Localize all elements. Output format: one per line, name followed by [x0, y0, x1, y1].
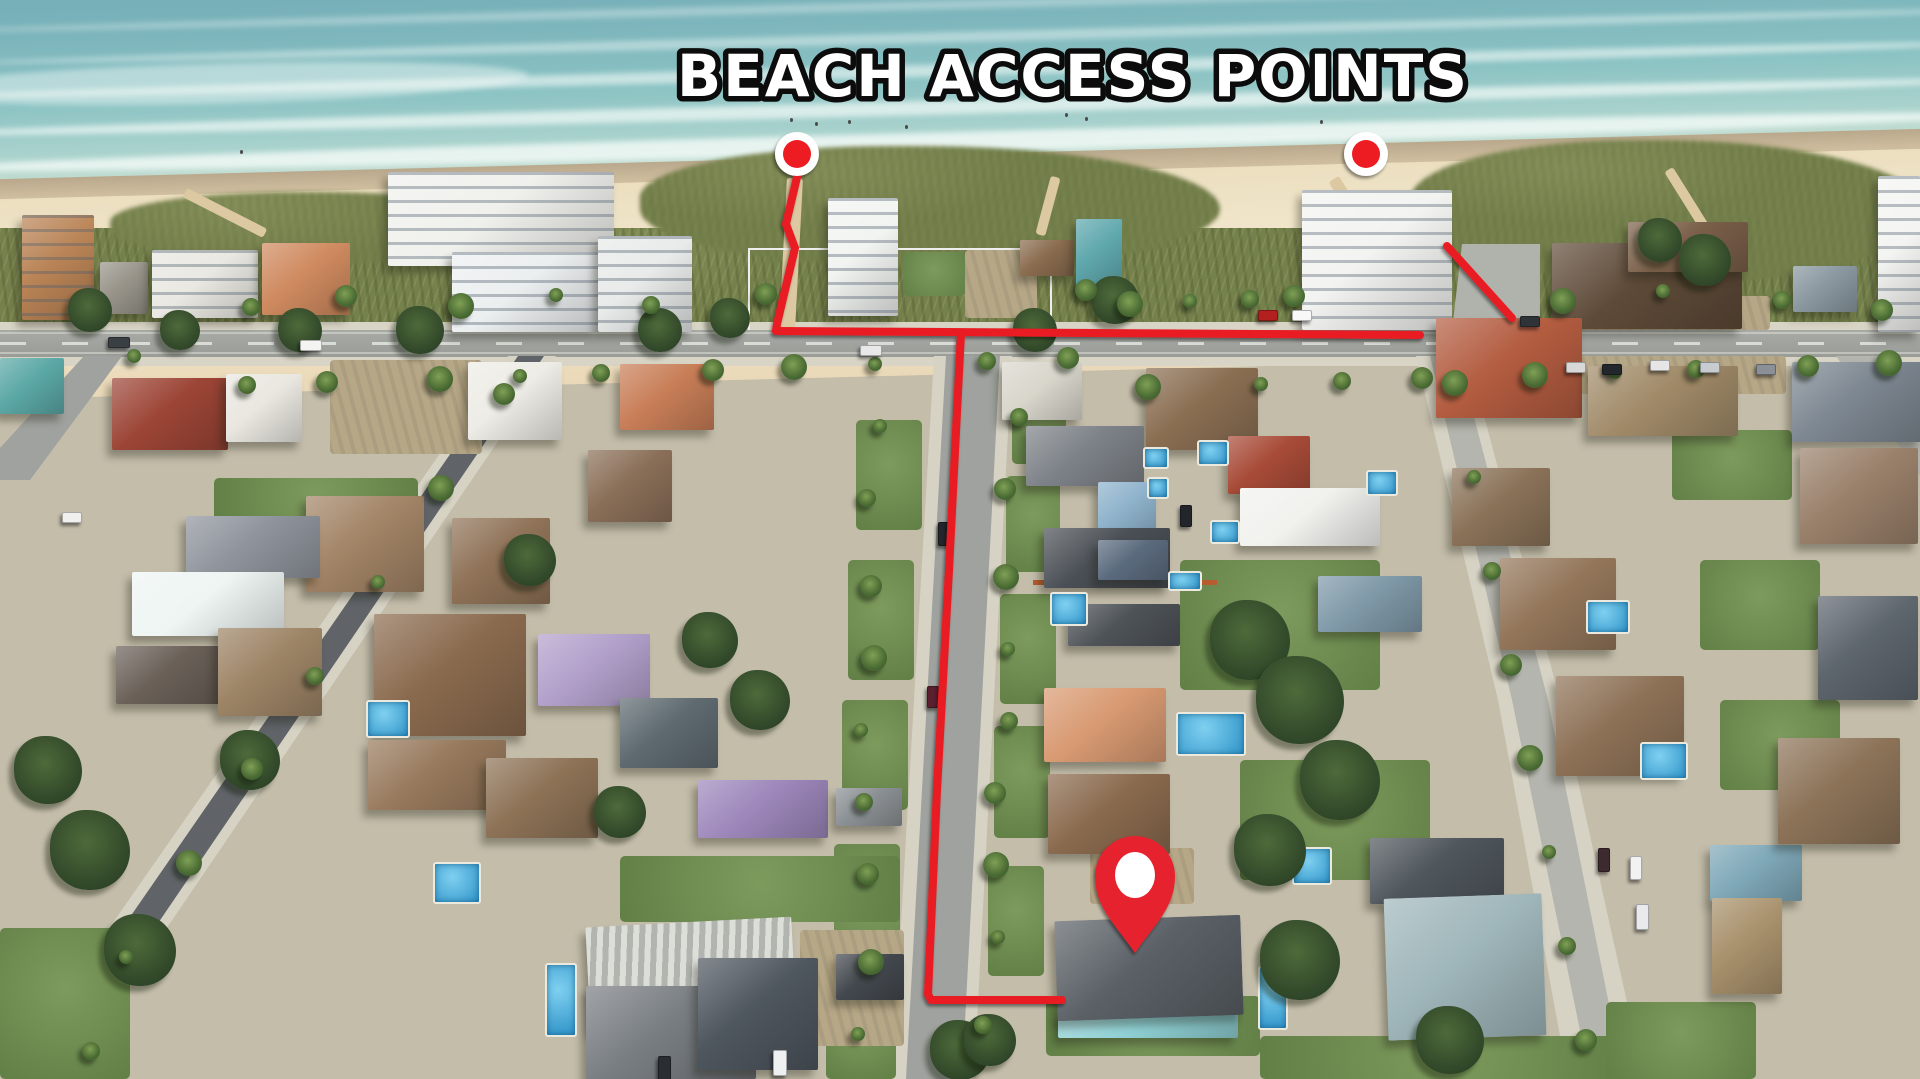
car	[108, 337, 130, 348]
car	[1700, 362, 1720, 373]
house	[1026, 426, 1144, 486]
house	[538, 634, 650, 706]
palm-tree	[868, 357, 882, 371]
tree	[396, 306, 444, 354]
lawn	[1700, 560, 1820, 650]
car	[62, 512, 82, 523]
house	[620, 364, 714, 430]
palm-tree	[991, 930, 1005, 944]
beachgoer-dot	[848, 120, 851, 124]
tree	[638, 308, 682, 352]
palm-tree	[1500, 654, 1522, 676]
palm-tree	[1411, 367, 1433, 389]
house	[828, 198, 898, 316]
palm-tree	[1522, 362, 1548, 388]
palm-tree	[858, 949, 884, 975]
palm-tree	[1517, 745, 1543, 771]
palm-tree	[1241, 290, 1259, 308]
palm-tree	[1550, 288, 1576, 314]
tree	[594, 786, 646, 838]
house	[1020, 240, 1074, 276]
tree	[1260, 920, 1340, 1000]
palm-tree	[993, 564, 1019, 590]
palm-tree	[1075, 279, 1097, 301]
palm-tree	[1183, 294, 1197, 308]
palm-tree	[781, 354, 807, 380]
pool	[545, 963, 577, 1037]
palm-tree	[873, 419, 887, 433]
house	[588, 450, 672, 522]
palm-tree	[1333, 372, 1351, 390]
pool	[366, 700, 410, 738]
dirt-lot	[1090, 848, 1194, 904]
house	[1054, 915, 1243, 1021]
palm-tree	[984, 782, 1006, 804]
lawn	[1672, 430, 1792, 500]
tree	[710, 298, 750, 338]
house	[1800, 448, 1918, 544]
car	[300, 340, 322, 351]
car	[1756, 364, 1776, 375]
palm-tree	[448, 293, 474, 319]
pool	[1147, 477, 1169, 499]
palm-tree	[1542, 845, 1556, 859]
lawn	[988, 866, 1044, 976]
palm-tree	[371, 575, 385, 589]
palm-tree	[851, 1027, 865, 1041]
car	[1650, 360, 1670, 371]
tree	[68, 288, 112, 332]
house	[1712, 898, 1782, 994]
palm-tree	[642, 296, 660, 314]
palm-tree	[860, 575, 882, 597]
house	[1044, 688, 1166, 762]
palm-tree	[127, 349, 141, 363]
tree	[1256, 656, 1344, 744]
tree	[1679, 234, 1731, 286]
palm-tree	[1876, 350, 1902, 376]
lawn	[994, 726, 1050, 838]
palm-tree	[1254, 377, 1268, 391]
pool	[1176, 712, 1246, 756]
dirt-lot	[330, 360, 482, 454]
tree	[682, 612, 738, 668]
house	[306, 496, 424, 592]
palm-tree	[983, 852, 1009, 878]
beachgoer-dot	[240, 150, 243, 154]
tree	[504, 534, 556, 586]
house	[0, 358, 64, 414]
palm-tree	[1467, 470, 1481, 484]
tree	[1013, 308, 1057, 352]
palm-tree	[702, 359, 724, 381]
palm-tree	[1442, 370, 1468, 396]
palm-tree	[978, 352, 996, 370]
pool	[1640, 742, 1688, 780]
tree	[1234, 814, 1306, 886]
house	[262, 243, 350, 315]
pool	[1143, 447, 1169, 469]
tree	[14, 736, 82, 804]
house	[186, 516, 320, 578]
palm-tree	[238, 376, 256, 394]
palm-tree	[994, 478, 1016, 500]
house	[1240, 488, 1380, 546]
palm-tree	[493, 383, 515, 405]
lawn	[856, 420, 922, 530]
palm-tree	[1001, 642, 1015, 656]
tree	[160, 310, 200, 350]
palm-tree	[1283, 285, 1305, 307]
beachgoer-dot	[1085, 117, 1088, 121]
car	[1258, 310, 1278, 321]
neighborhood	[0, 0, 1920, 1079]
palm-tree	[1117, 291, 1143, 317]
car	[1566, 362, 1586, 373]
car	[1602, 364, 1622, 375]
house	[1370, 838, 1504, 904]
pool	[433, 862, 481, 904]
palm-tree	[1773, 291, 1791, 309]
palm-tree	[1010, 408, 1028, 426]
palm-tree	[974, 1016, 992, 1034]
palm-tree	[242, 298, 260, 316]
beachgoer-dot	[905, 125, 908, 129]
house	[1710, 845, 1802, 901]
palm-tree	[857, 863, 879, 885]
car	[1630, 856, 1642, 880]
lawn	[1606, 1002, 1756, 1079]
house	[1318, 576, 1422, 632]
palm-tree	[1575, 1029, 1597, 1051]
car	[1520, 316, 1540, 327]
beach-walkway	[183, 188, 268, 238]
lawn	[620, 856, 900, 922]
car	[1180, 505, 1192, 527]
house	[112, 378, 228, 450]
tree	[104, 914, 176, 986]
pool	[1050, 592, 1088, 626]
beachgoer-dot	[1320, 120, 1323, 124]
house	[1228, 436, 1310, 494]
palm-tree	[306, 667, 324, 685]
house	[620, 698, 718, 768]
palm-tree	[428, 475, 454, 501]
palm-tree	[335, 285, 357, 307]
house	[698, 958, 818, 1070]
beach-walkway	[1035, 176, 1060, 237]
pool	[1366, 470, 1398, 496]
car	[658, 1056, 671, 1079]
palm-tree	[176, 850, 202, 876]
pool	[1210, 520, 1240, 544]
house	[1793, 266, 1857, 312]
palm-tree	[1057, 347, 1079, 369]
house	[1818, 596, 1918, 700]
car	[1598, 848, 1610, 872]
palm-tree	[854, 723, 868, 737]
tree	[1638, 218, 1682, 262]
house	[1302, 190, 1452, 330]
palm-tree	[1656, 284, 1670, 298]
house	[486, 758, 598, 838]
pool	[1586, 600, 1630, 634]
palm-tree	[592, 364, 610, 382]
house	[1778, 738, 1900, 844]
house	[116, 646, 222, 704]
car	[938, 522, 950, 546]
tree	[50, 810, 130, 890]
car	[927, 686, 939, 708]
car	[1292, 310, 1312, 321]
house	[698, 780, 828, 838]
palm-tree	[1483, 562, 1501, 580]
palm-tree	[1871, 299, 1893, 321]
beachgoer-dot	[1065, 113, 1068, 117]
house	[132, 572, 284, 636]
house	[1048, 774, 1170, 854]
palm-tree	[1000, 712, 1018, 730]
car	[1636, 904, 1649, 930]
beachgoer-dot	[790, 118, 793, 122]
tree	[1300, 740, 1380, 820]
house	[452, 252, 598, 332]
palm-tree	[316, 371, 338, 393]
palm-tree	[82, 1042, 100, 1060]
house	[1098, 540, 1168, 580]
pool	[1168, 571, 1202, 591]
aerial-photo: BEACH ACCESS POINTS	[0, 0, 1920, 1079]
white-fence	[748, 248, 1052, 330]
tree	[730, 670, 790, 730]
house	[1436, 318, 1582, 418]
palm-tree	[1558, 937, 1576, 955]
palm-tree	[861, 645, 887, 671]
pool	[1197, 440, 1229, 466]
tree	[1416, 1006, 1484, 1074]
palm-tree	[427, 366, 453, 392]
palm-tree	[755, 283, 777, 305]
car	[773, 1050, 787, 1076]
car	[860, 345, 882, 356]
beachgoer-dot	[815, 122, 818, 126]
